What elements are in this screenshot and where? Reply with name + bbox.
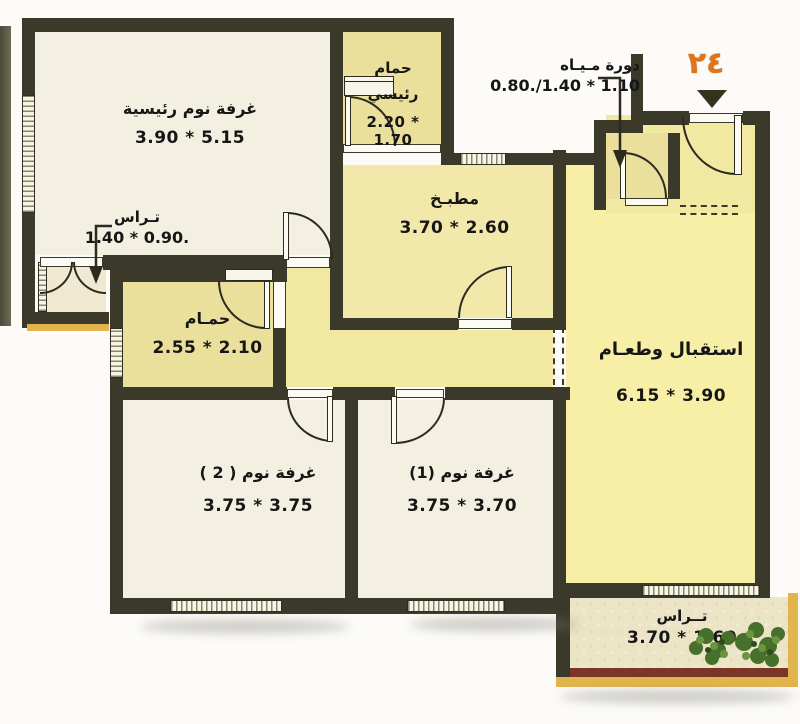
room-name: غرفة نوم ( 2 )	[172, 462, 344, 484]
room-dims: 6.15 * 3.90	[582, 386, 760, 406]
wall	[553, 150, 566, 330]
wall	[22, 18, 35, 95]
opening-dash	[562, 327, 564, 385]
room-name: دورة مـيـاه	[466, 56, 640, 74]
label-master-bathroom: حمام رئيسي 2.20 * 1.70	[345, 58, 441, 149]
room-name: تـراس	[82, 208, 192, 226]
wall	[333, 387, 395, 400]
room-name: مطبـخ	[377, 188, 532, 210]
opening-dash	[553, 327, 555, 385]
window-reception-terrace	[642, 585, 760, 596]
label-kitchen: مطبـخ 3.70 * 2.60	[377, 188, 532, 238]
label-bedroom-1: غرفة نوم (1) 3.75 * 3.70	[378, 462, 546, 516]
gold-trim	[788, 593, 798, 679]
room-dims: 1.40 * 0.90.	[82, 228, 192, 247]
door-leaf-bedroom-1	[391, 396, 397, 444]
wall	[553, 388, 566, 598]
wall	[27, 312, 109, 324]
door-threshold-bedroom-1	[396, 389, 444, 398]
wall	[330, 18, 343, 330]
scan-shadow	[560, 690, 795, 703]
window-bathroom	[110, 328, 123, 378]
room-dims: 2.55 * 2.10	[130, 338, 285, 358]
wall	[330, 318, 458, 330]
wall	[594, 120, 606, 210]
wall	[110, 268, 123, 612]
room-dims: 3.70 * 1.60	[598, 628, 766, 648]
gold-trim	[27, 324, 109, 331]
gold-trim	[556, 677, 798, 687]
room-dims: 2.20 * 1.70	[345, 113, 441, 149]
unit-number: ٢٤	[682, 46, 730, 81]
room-name: غرفة نوم رئيسية	[85, 98, 295, 120]
hallway	[286, 330, 553, 387]
door-leaf-bedroom-2	[327, 396, 333, 442]
room-name: تــراس	[598, 606, 766, 626]
window-master-bedroom	[22, 95, 35, 213]
wall	[445, 387, 570, 400]
door-leaf-kitchen	[506, 266, 512, 318]
scan-edge	[0, 26, 11, 326]
door-threshold-kitchen	[458, 319, 512, 329]
door-leaf-master-bedroom	[283, 212, 289, 260]
room-dims: 3.75 * 3.75	[172, 496, 344, 516]
scan-shadow	[410, 618, 580, 631]
annotation-terrace-side: تـراس 1.40 * 0.90.	[82, 208, 192, 247]
room-dims: 3.90 * 5.15	[85, 128, 295, 148]
door-leaf-wc	[620, 152, 626, 199]
room-name: استقبال وطعـام	[582, 338, 760, 362]
opening-dash	[680, 205, 738, 207]
wall	[110, 387, 287, 400]
label-terrace-bottom: تــراس 3.70 * 1.60	[598, 606, 766, 648]
room-dims: 3.75 * 3.70	[378, 496, 546, 516]
annotation-wc: دورة مـيـاه 0.80./1.40 * 1.10	[466, 56, 640, 95]
wall	[441, 18, 454, 165]
room-name: غرفة نوم (1)	[378, 462, 546, 484]
room-dims: 3.70 * 2.60	[377, 218, 532, 238]
wall	[556, 583, 570, 682]
floor-plan: غرفة نوم رئيسية 3.90 * 5.15 حمام رئيسي 2…	[0, 0, 800, 724]
room-name: حمـام	[130, 308, 285, 330]
label-master-bedroom: غرفة نوم رئيسية 3.90 * 5.15	[85, 98, 295, 148]
room-name: حمام	[345, 58, 441, 78]
room-name: رئيسي	[345, 84, 441, 104]
window-kitchen	[460, 153, 506, 165]
window-bedroom-2	[170, 600, 282, 612]
hall-stub	[286, 268, 330, 330]
vent-window-bathroom	[225, 269, 273, 281]
scan-shadow	[140, 620, 350, 633]
wall	[22, 18, 454, 32]
wall	[273, 268, 286, 282]
wall	[668, 133, 680, 199]
window-bedroom-1	[407, 600, 505, 612]
wall	[22, 213, 35, 328]
door-threshold-wc	[625, 198, 668, 206]
terrace-border	[570, 668, 798, 677]
label-reception: استقبال وطعـام 6.15 * 3.90	[582, 338, 760, 406]
label-bathroom: حمـام 2.55 * 2.10	[130, 308, 285, 358]
opening-dash	[680, 213, 738, 215]
room-dims: 0.80./1.40 * 1.10	[466, 76, 640, 95]
door-leaf-entrance	[734, 115, 742, 175]
wall	[345, 400, 358, 612]
unit-arrow-icon	[697, 90, 727, 108]
label-bedroom-2: غرفة نوم ( 2 ) 3.75 * 3.75	[172, 462, 344, 516]
